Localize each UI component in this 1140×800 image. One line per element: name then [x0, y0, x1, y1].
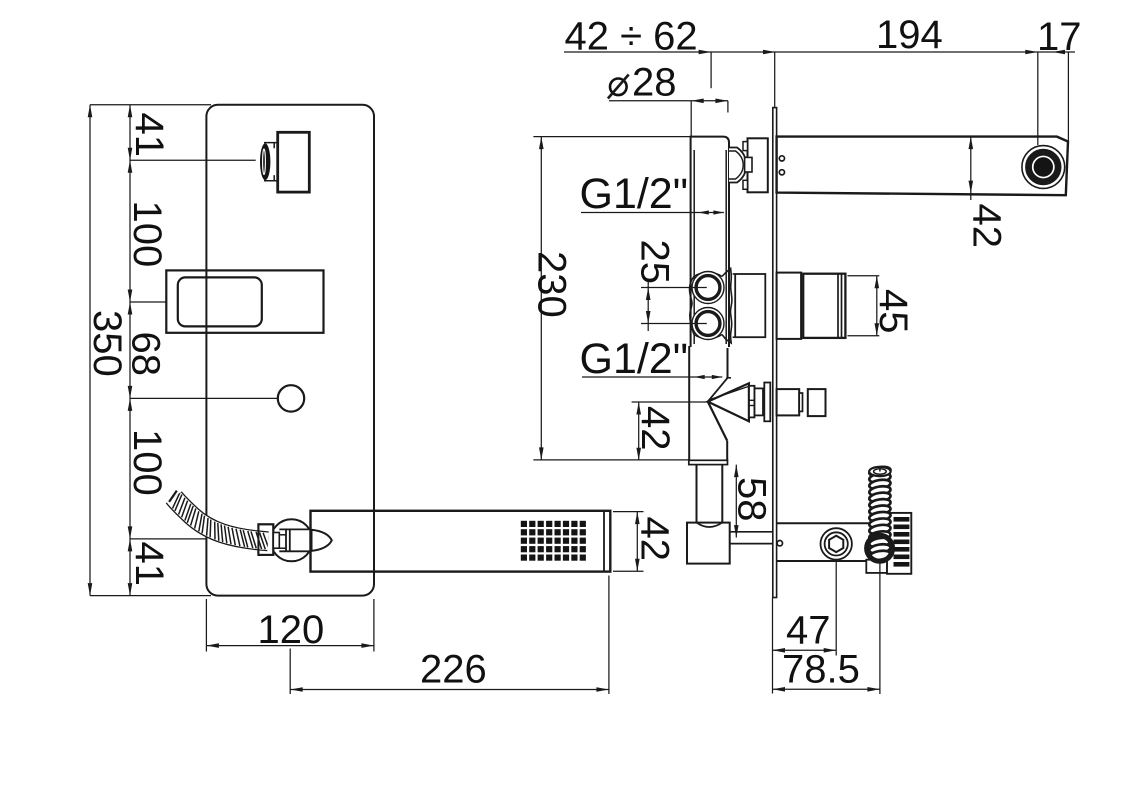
svg-text:120: 120: [258, 608, 325, 652]
svg-text:100: 100: [125, 201, 169, 268]
svg-text:68: 68: [124, 332, 168, 377]
svg-text:350: 350: [85, 310, 129, 377]
svg-text:42 ÷ 62: 42 ÷ 62: [565, 15, 698, 59]
svg-text:47: 47: [786, 609, 831, 653]
svg-text:226: 226: [420, 648, 487, 692]
svg-text:194: 194: [876, 13, 943, 57]
svg-text:G1/2": G1/2": [580, 335, 689, 383]
svg-text:G1/2": G1/2": [580, 170, 689, 218]
svg-text:42: 42: [965, 204, 1009, 249]
svg-text:17: 17: [1037, 15, 1082, 59]
svg-text:230: 230: [530, 251, 574, 318]
svg-text:42: 42: [633, 406, 677, 451]
svg-text:28: 28: [632, 61, 677, 105]
svg-text:45: 45: [871, 289, 915, 334]
svg-text:25: 25: [633, 240, 677, 285]
svg-text:42: 42: [633, 517, 677, 562]
svg-text:41: 41: [127, 542, 171, 587]
svg-text:100: 100: [125, 429, 169, 496]
svg-text:41: 41: [127, 113, 171, 158]
svg-text:78.5: 78.5: [782, 648, 860, 692]
svg-text:58: 58: [730, 477, 774, 522]
